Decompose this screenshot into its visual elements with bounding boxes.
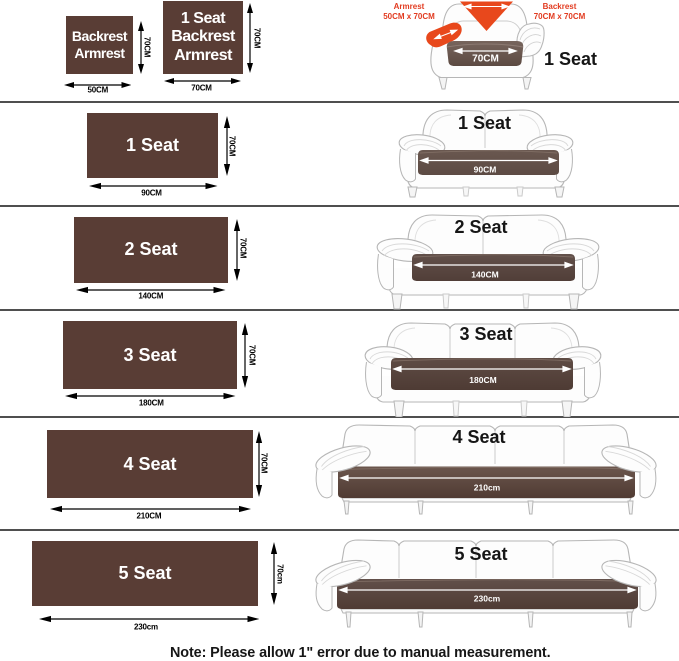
svg-text:90CM: 90CM bbox=[474, 165, 497, 175]
svg-text:140CM: 140CM bbox=[471, 270, 498, 280]
svg-text:70CM: 70CM bbox=[472, 54, 499, 65]
svg-text:180CM: 180CM bbox=[469, 375, 496, 385]
svg-text:210cm: 210cm bbox=[474, 483, 501, 493]
svg-text:230cm: 230cm bbox=[474, 594, 501, 604]
